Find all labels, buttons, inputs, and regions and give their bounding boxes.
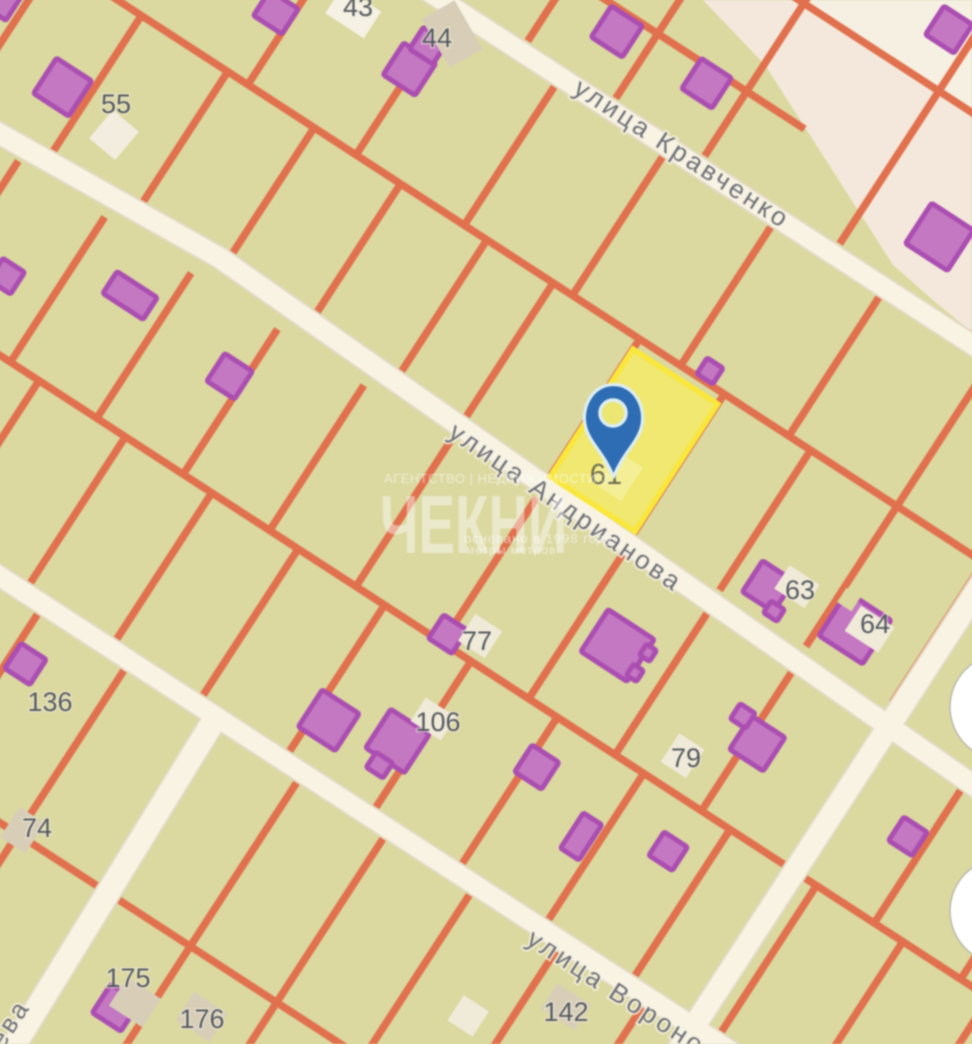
svg-text:79: 79 <box>671 743 701 773</box>
svg-text:55: 55 <box>101 89 131 119</box>
svg-text:176: 176 <box>179 1004 224 1034</box>
svg-text:74: 74 <box>22 813 52 843</box>
svg-text:63: 63 <box>785 575 815 605</box>
svg-text:64: 64 <box>860 609 890 639</box>
svg-text:77: 77 <box>462 626 492 656</box>
svg-text:142: 142 <box>543 997 588 1027</box>
svg-text:136: 136 <box>27 687 72 717</box>
svg-text:106: 106 <box>415 707 460 737</box>
svg-text:175: 175 <box>105 963 150 993</box>
svg-text:метры метров: метры метров <box>466 543 556 557</box>
svg-text:44: 44 <box>422 23 452 53</box>
svg-text:43: 43 <box>343 0 373 22</box>
